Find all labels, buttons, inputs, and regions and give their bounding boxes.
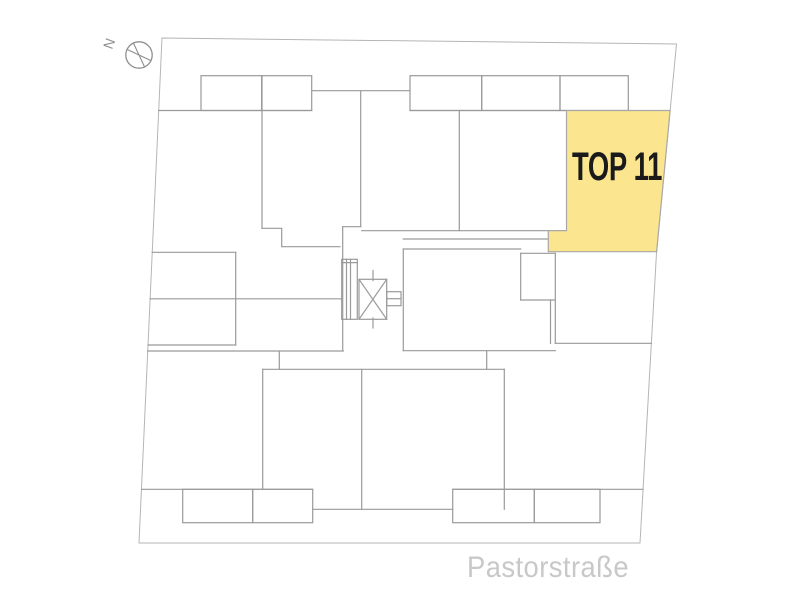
unit-top11-label: TOP 11 — [572, 145, 662, 189]
balcony-top-right-3 — [560, 76, 628, 111]
floor-plan-page: TOP 11 N Pastorstraße — [0, 0, 800, 600]
balcony-bottom-left-2 — [253, 489, 313, 522]
balcony-top-left-1 — [201, 76, 262, 111]
elevator-icon — [359, 271, 401, 329]
site-plan: TOP 11 N Pastorstraße — [0, 0, 800, 600]
balcony-top-left-2 — [262, 76, 312, 111]
staircase-icon — [342, 259, 358, 319]
compass-north-label: N — [100, 36, 118, 51]
balcony-top-right-2 — [482, 76, 560, 111]
balcony-bottom-left-1 — [183, 489, 253, 522]
balcony-bottom-right-2 — [534, 489, 600, 522]
street-name-label: Pastorstraße — [467, 551, 629, 584]
compass-icon — [126, 42, 152, 68]
balcony-top-right-1 — [410, 76, 482, 111]
balcony-bottom-right-1 — [453, 489, 535, 522]
